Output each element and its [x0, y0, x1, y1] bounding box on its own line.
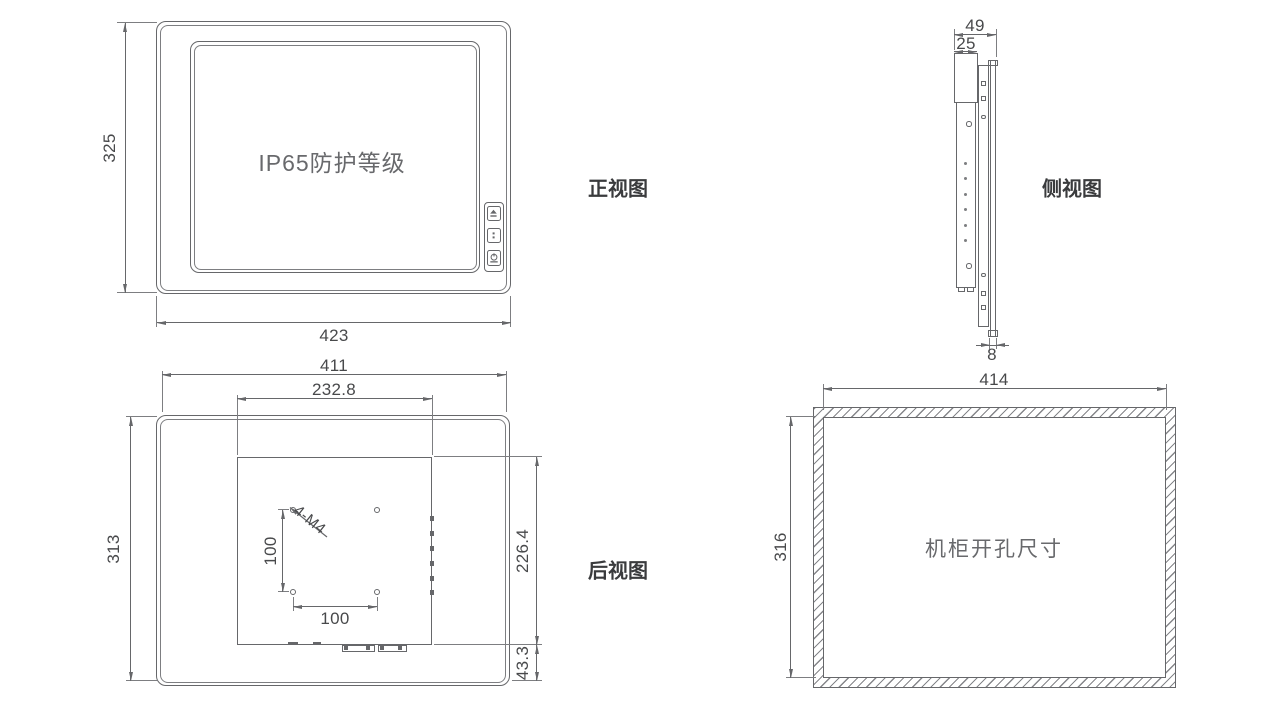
- vesa-vertical-dim-text: 100: [261, 536, 281, 565]
- front-width-dim-line: [157, 322, 511, 323]
- dimension-drawing-canvas: IP65防护等级 325: [0, 0, 1280, 710]
- side-view-title: 侧视图: [1042, 173, 1102, 202]
- front-screen-label: IP65防护等级: [258, 144, 405, 178]
- rear-module-height-ext-top: [434, 456, 542, 457]
- rear-connector-pin: [380, 646, 384, 650]
- vesa-hole-bottom-right: [374, 589, 380, 595]
- side-vent-dot: [964, 224, 967, 227]
- rear-vent-tick: [430, 590, 434, 595]
- rear-module-width-ext-left: [237, 395, 238, 455]
- rear-height-dim-line: [130, 417, 131, 681]
- side-plate-hole: [981, 273, 986, 278]
- front-height-dim-line: [125, 23, 126, 293]
- rear-vent-tick: [430, 546, 434, 551]
- side-slot: [981, 305, 986, 310]
- menu-button: [487, 228, 501, 243]
- side-foot-left: [958, 287, 965, 292]
- vesa-hole-top-right: [374, 507, 380, 513]
- side-panel-dim-text: 8: [987, 345, 997, 365]
- side-slot: [981, 81, 986, 86]
- front-height-dim-text: 325: [100, 133, 120, 162]
- vesa-hole-bottom-left: [290, 589, 296, 595]
- brightness-up-icon: [489, 209, 498, 218]
- rear-connector-dash: [313, 642, 321, 645]
- side-panel-arrow-right: [996, 343, 1005, 347]
- side-vent-dot: [964, 193, 967, 196]
- front-width-dim-text: 423: [319, 326, 348, 346]
- rear-width-dim-text: 411: [320, 356, 348, 376]
- rear-connector-dash: [288, 642, 298, 645]
- cutout-height-dim-text: 316: [771, 532, 791, 561]
- rear-connector-pin: [344, 646, 348, 650]
- side-panel-cap-bottom: [988, 330, 998, 337]
- rear-module-height-dim-text: 226.4: [513, 529, 533, 573]
- power-button: [487, 250, 501, 266]
- brightness-up-button: [487, 206, 501, 221]
- side-slot: [981, 291, 986, 296]
- side-screw-hole: [966, 121, 972, 127]
- cutout-title: 机柜开孔尺寸: [925, 533, 1063, 563]
- side-body-depth-dim-text: 25: [956, 34, 976, 54]
- side-vent-dot: [964, 162, 967, 165]
- cutout-width-dim-text: 414: [979, 370, 1008, 390]
- rear-module-height-dim-line: [536, 457, 537, 645]
- rear-vent-tick: [430, 531, 434, 536]
- rear-bottom-offset-dim-text: 43.3: [513, 646, 533, 680]
- side-body-top: [954, 53, 978, 103]
- menu-dots-icon: [489, 231, 498, 240]
- rear-bottom-offset-dim-line: [536, 645, 537, 681]
- side-front-panel: [990, 60, 997, 337]
- rear-vent-tick: [430, 561, 434, 566]
- side-slot: [981, 96, 986, 101]
- rear-width-ext-left: [162, 371, 163, 412]
- rear-height-dim-text: 313: [104, 534, 124, 563]
- rear-width-ext-right: [506, 371, 507, 412]
- vesa-horizontal-dim-line: [293, 606, 377, 607]
- rear-view-title: 后视图: [588, 555, 648, 584]
- vesa-horizontal-dim-text: 100: [320, 609, 349, 629]
- vesa-vertical-dim-line: [282, 510, 283, 592]
- power-icon: [489, 253, 499, 263]
- front-view-title: 正视图: [588, 173, 648, 202]
- rear-connector-pin: [366, 646, 370, 650]
- side-foot-right: [967, 287, 974, 292]
- side-mount-plate: [978, 65, 989, 327]
- side-plate-hole: [981, 115, 986, 120]
- rear-vent-tick: [430, 576, 434, 581]
- rear-connector-pin: [398, 646, 402, 650]
- rear-module-width-ext-right: [432, 395, 433, 455]
- rear-module-width-dim-text: 232.8: [312, 380, 356, 400]
- rear-vent-tick: [430, 516, 434, 521]
- side-screw-hole: [966, 263, 972, 269]
